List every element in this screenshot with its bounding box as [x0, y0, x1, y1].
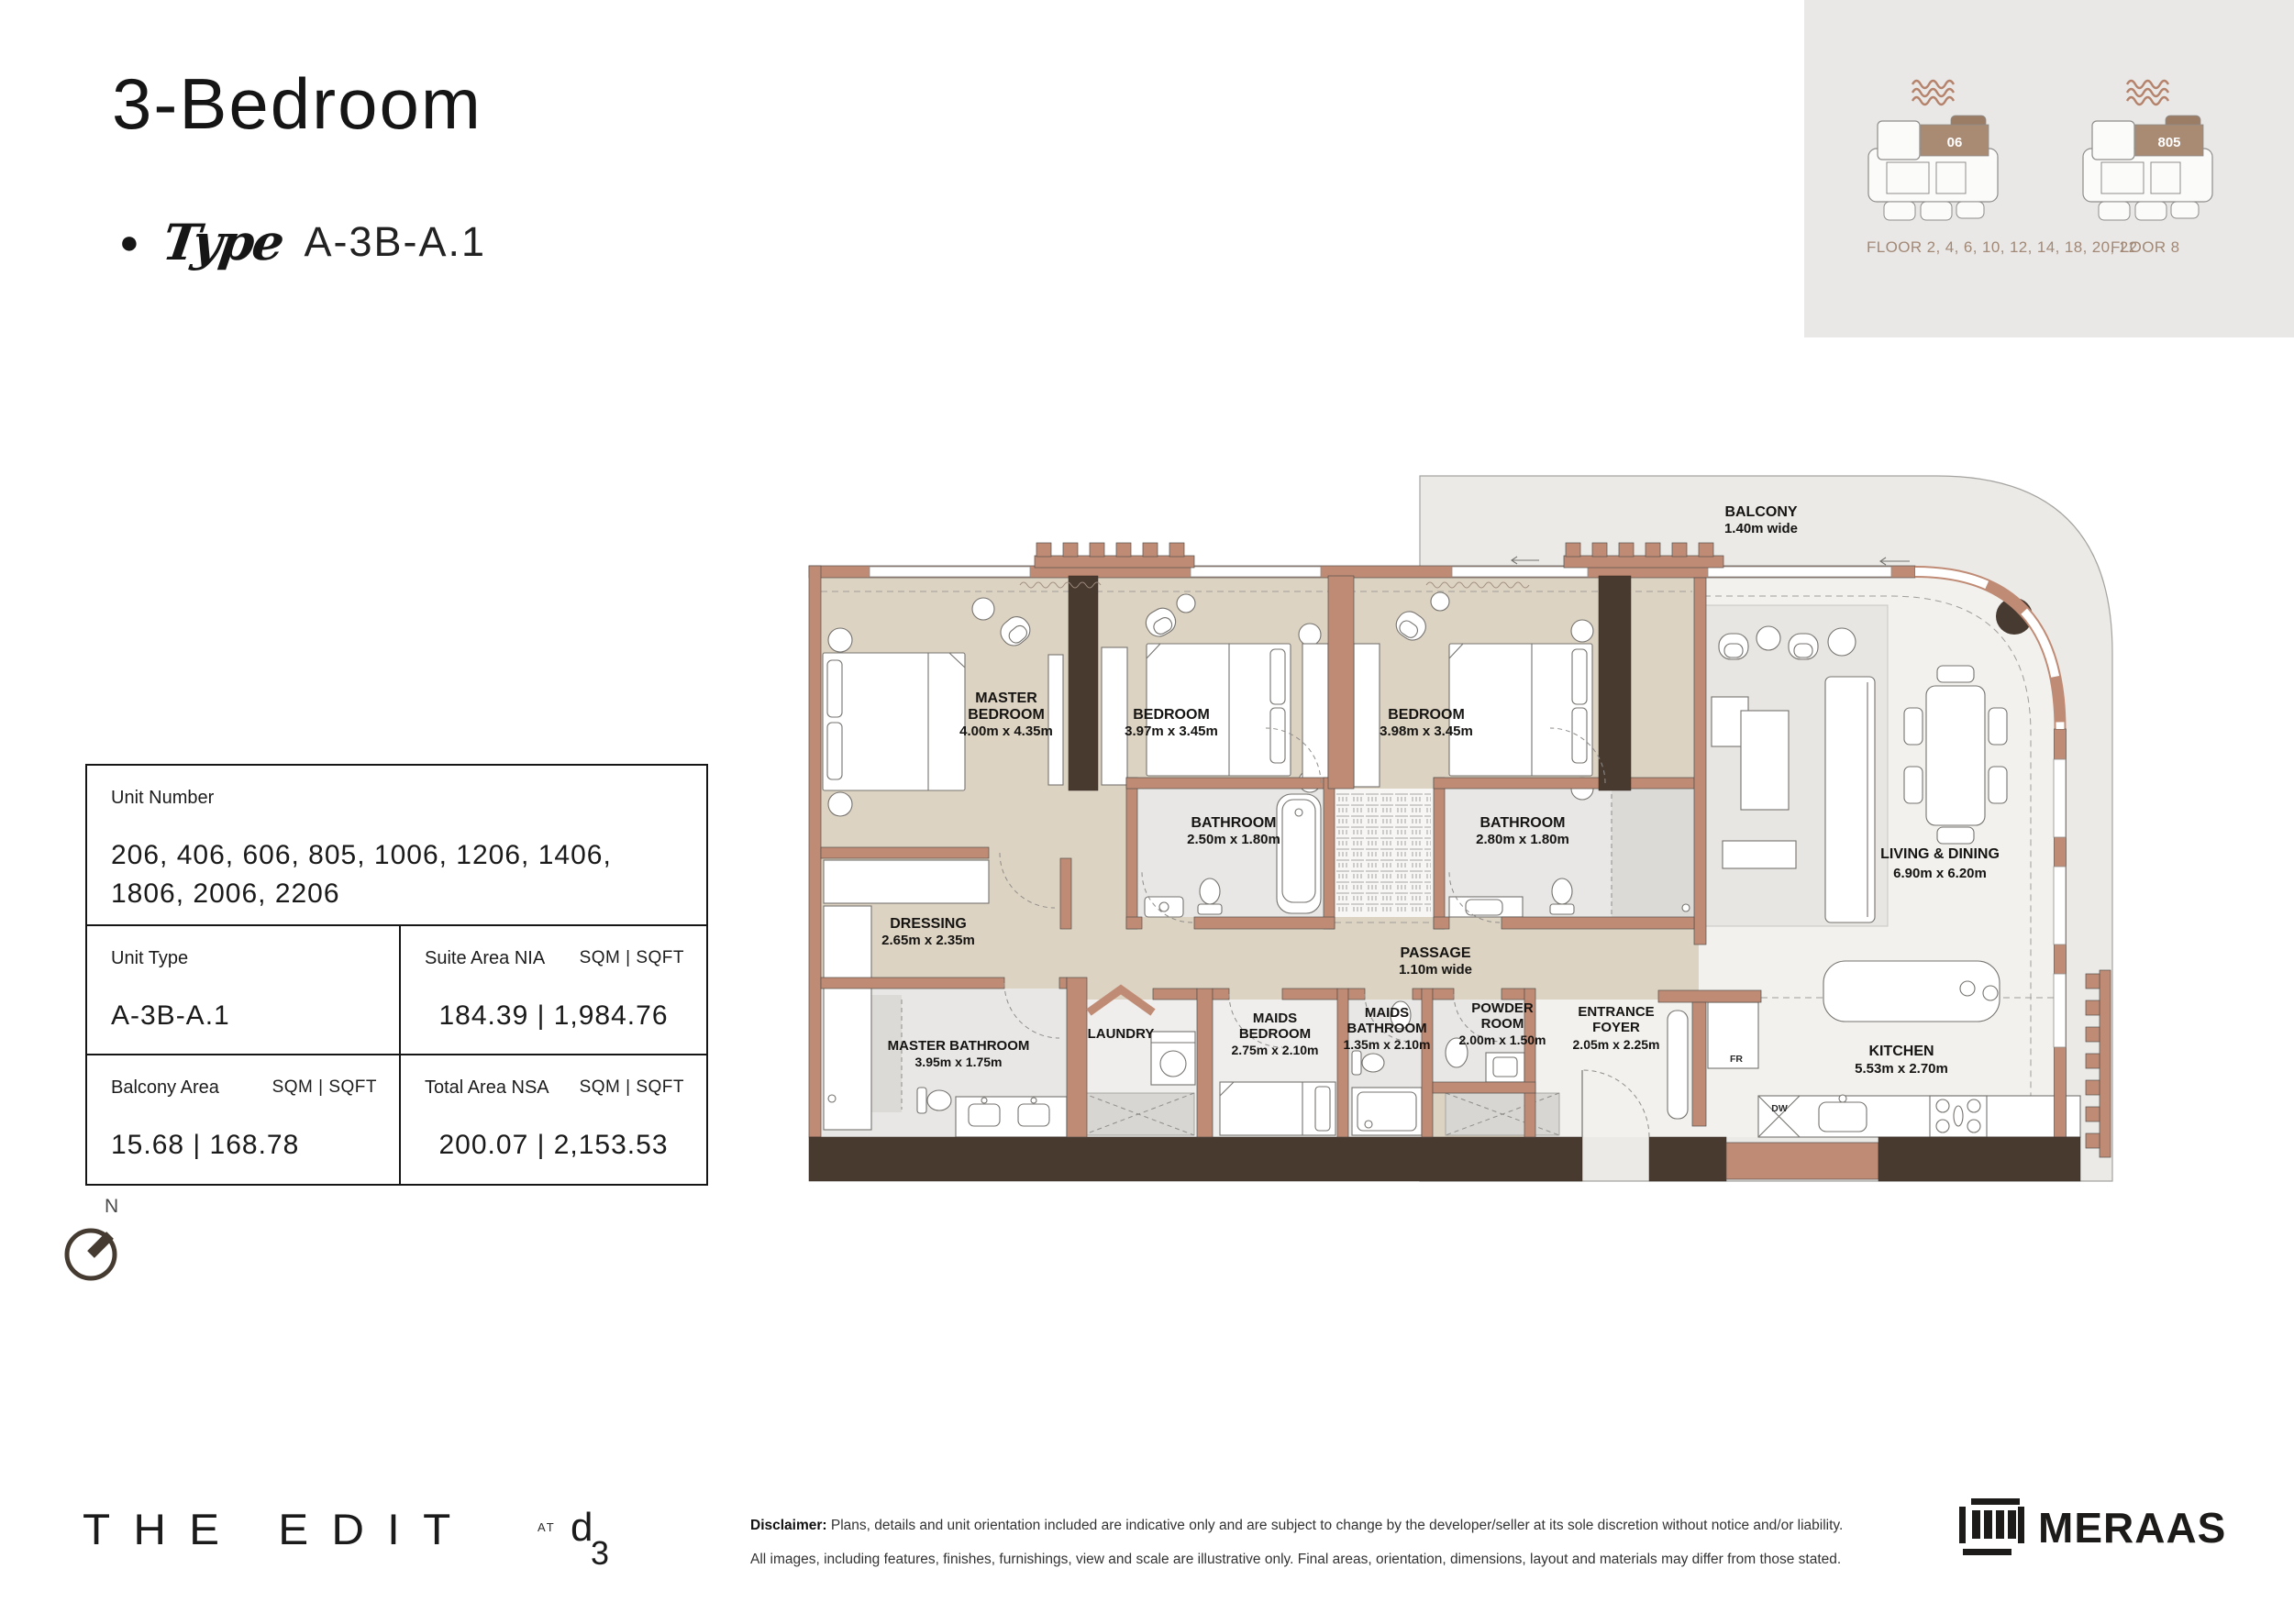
floor-plan-sheet: 3-Bedroom ● Type A-3B-A.1: [0, 0, 2294, 1624]
wardrobe: [1354, 644, 1380, 787]
meraas-logo-icon: [1959, 1498, 2025, 1557]
vanity-sink: [1449, 897, 1523, 917]
armchair: [1789, 634, 1818, 659]
floor-list-1: FLOOR 2, 4, 6, 10, 12, 14, 18, 20, 22: [1867, 238, 2137, 257]
room-name: MASTER BATHROOM: [888, 1038, 1030, 1054]
nightstand: [1299, 624, 1321, 646]
room-dims: 3.95m x 1.75m: [915, 1055, 1003, 1069]
room-name: POWDER: [1471, 1000, 1534, 1016]
room-label-balcony: BALCONY 1.40m wide: [1724, 504, 1798, 536]
building-key-2: [2083, 81, 2212, 220]
room-label-laundry: LAUNDRY: [1088, 1026, 1155, 1042]
room-name: FOYER: [1592, 1020, 1640, 1035]
nightstand: [1571, 620, 1593, 642]
room-name: BEDROOM: [968, 707, 1045, 723]
floor-key-panel: 06 805 FLOOR 2, 4, 6, 10, 12, 14, 18, 20…: [1804, 0, 2294, 337]
room-dims: 5.53m x 2.70m: [1855, 1061, 1948, 1077]
room-label-bedroom-2: BEDROOM 3.97m x 3.45m: [1125, 707, 1218, 739]
room-name: ENTRANCE: [1578, 1004, 1654, 1020]
type-code: A-3B-A.1: [305, 218, 487, 266]
d3-logo-3: 3: [591, 1534, 609, 1572]
floor-list-2: FLOOR 8: [2111, 238, 2180, 257]
washing-machine: [1151, 1032, 1195, 1085]
d3-logo-d: d: [571, 1505, 593, 1550]
double-vanity: [956, 1097, 1067, 1137]
toilet: [1550, 878, 1574, 914]
nightstand: [828, 792, 852, 816]
type-script-label: Type: [159, 213, 286, 271]
unit-type-label: Unit Type: [111, 948, 375, 969]
room-name: BEDROOM: [1239, 1026, 1311, 1042]
balcony-area-units: SQM | SQFT: [272, 1077, 377, 1098]
d3-logo-icon: d 3: [569, 1504, 624, 1573]
unit-number-highlight-2: 805: [2157, 135, 2180, 150]
bed-maids: [1220, 1082, 1335, 1135]
vanity-sink: [1486, 1053, 1524, 1082]
table-row-type-suite: Unit Type A-3B-A.1 Suite Area NIA SQM | …: [87, 924, 706, 1054]
side-table: [1431, 592, 1449, 611]
room-name: BATHROOM: [1191, 815, 1276, 831]
bed-master: [823, 653, 965, 790]
disclaimer-line2: All images, including features, finishes…: [750, 1552, 1841, 1567]
room-name: MAIDS: [1253, 1011, 1297, 1026]
room-name: LIVING & DINING: [1880, 846, 2000, 862]
room-name: LAUNDRY: [1088, 1026, 1155, 1042]
meraas-wordmark: MERAAS: [2038, 1503, 2226, 1552]
room-name: KITCHEN: [1868, 1044, 1934, 1059]
balcony-area-value: 15.68 | 168.78: [111, 1126, 375, 1165]
disclaimer-label: Disclaimer:: [750, 1518, 827, 1533]
room-dims: 1.10m wide: [1399, 962, 1472, 978]
chaise: [1741, 711, 1789, 810]
room-name: BEDROOM: [1388, 707, 1465, 723]
room-name: BALCONY: [1724, 504, 1797, 520]
room-dims: 3.97m x 3.45m: [1125, 724, 1218, 739]
coffee-table: [1723, 841, 1796, 868]
suite-area-value: 184.39 | 1,984.76: [425, 997, 682, 1035]
suite-area-units: SQM | SQFT: [580, 948, 684, 968]
bed-3: [1449, 644, 1592, 776]
unit-number-highlight-1: 06: [1947, 135, 1963, 150]
room-dims: 6.90m x 6.20m: [1893, 866, 1987, 881]
table-row-balcony-total: Balcony Area SQM | SQFT 15.68 | 168.78 T…: [87, 1054, 706, 1184]
meraas-logo: MERAAS: [1959, 1498, 2226, 1557]
bathtub: [1277, 794, 1321, 913]
floor-key-diagrams: 06 805: [1804, 0, 2294, 337]
fridge-label: FR: [1730, 1054, 1743, 1065]
room-dims: 3.98m x 3.45m: [1380, 724, 1473, 739]
round-table: [1757, 626, 1780, 650]
room-name: ROOM: [1481, 1016, 1524, 1032]
wardrobe: [1102, 647, 1127, 785]
the-edit-logo: THE EDIT: [83, 1504, 473, 1554]
room-dims: 2.65m x 2.35m: [881, 933, 975, 948]
room-dims: 2.75m x 2.10m: [1232, 1043, 1319, 1057]
nightstand: [828, 628, 852, 652]
brand-at-label: AT: [537, 1520, 556, 1534]
room-name: MAIDS: [1365, 1005, 1409, 1021]
room-dims: 2.80m x 1.80m: [1476, 832, 1569, 847]
room-label-passage: PASSAGE 1.10m wide: [1399, 945, 1472, 978]
unit-info-table: Unit Number 206, 406, 606, 805, 1006, 12…: [85, 764, 708, 1186]
dishwasher-label: DW: [1771, 1103, 1788, 1114]
kitchen-counter: [1758, 1095, 2080, 1137]
total-area-units: SQM | SQFT: [580, 1077, 684, 1098]
shower-head: [1682, 904, 1690, 911]
tv-console: [1048, 655, 1063, 785]
kitchen-island: [1823, 961, 2000, 1022]
round-table: [1828, 628, 1856, 656]
room-name: PASSAGE: [1400, 945, 1470, 961]
table-row-unit-number: Unit Number 206, 406, 606, 805, 1006, 12…: [87, 766, 706, 924]
room-name: DRESSING: [890, 916, 967, 932]
room-label-bathroom-3: BATHROOM 2.80m x 1.80m: [1476, 815, 1569, 847]
unit-type-value: A-3B-A.1: [111, 997, 375, 1035]
shower-head: [828, 1095, 836, 1102]
toilet: [1198, 878, 1222, 914]
console-cabinet: [1668, 1011, 1688, 1119]
bullet-icon: ●: [119, 226, 139, 259]
room-label-bathroom-2: BATHROOM 2.50m x 1.80m: [1187, 815, 1280, 847]
room-label-dressing: DRESSING 2.65m x 2.35m: [881, 916, 975, 948]
unit-type-heading: ● Type A-3B-A.1: [119, 213, 486, 271]
total-area-value: 200.07 | 2,153.53: [425, 1126, 682, 1165]
wardrobe: [1302, 644, 1328, 787]
wardrobe: [824, 860, 989, 903]
shower-tray: [1352, 1088, 1422, 1135]
room-dims: 2.50m x 1.80m: [1187, 832, 1280, 847]
disclaimer-line1: Plans, details and unit orientation incl…: [831, 1518, 1843, 1533]
unit-number-value: 206, 406, 606, 805, 1006, 1206, 1406, 18…: [111, 836, 680, 913]
room-name: BATHROOM: [1479, 815, 1565, 831]
room-dims: 2.00m x 1.50m: [1459, 1033, 1546, 1047]
building-key-1: [1868, 81, 1998, 220]
page-title: 3-Bedroom: [112, 62, 482, 146]
room-name: MASTER: [975, 690, 1037, 706]
side-table: [1177, 594, 1195, 613]
room-label-bedroom-3: BEDROOM 3.98m x 3.45m: [1380, 707, 1473, 739]
compass-icon: N: [53, 1188, 163, 1294]
room-dims: 2.05m x 2.25m: [1573, 1037, 1660, 1052]
room-name: BEDROOM: [1133, 707, 1210, 723]
room-dims: 1.40m wide: [1724, 521, 1798, 536]
armchair: [1719, 634, 1748, 659]
room-dims: 1.35m x 2.10m: [1344, 1037, 1431, 1052]
disclaimer: Disclaimer: Plans, details and unit orie…: [750, 1508, 1843, 1576]
unit-number-label: Unit Number: [111, 788, 682, 809]
room-dims: 4.00m x 4.35m: [959, 724, 1053, 739]
floor-plan: MASTER BEDROOM 4.00m x 4.35m BEDROOM 3.9…: [807, 401, 2119, 1208]
sofa: [1825, 677, 1875, 922]
compass-north-label: N: [105, 1196, 118, 1217]
side-table: [972, 598, 994, 620]
room-name: BATHROOM: [1346, 1021, 1426, 1036]
